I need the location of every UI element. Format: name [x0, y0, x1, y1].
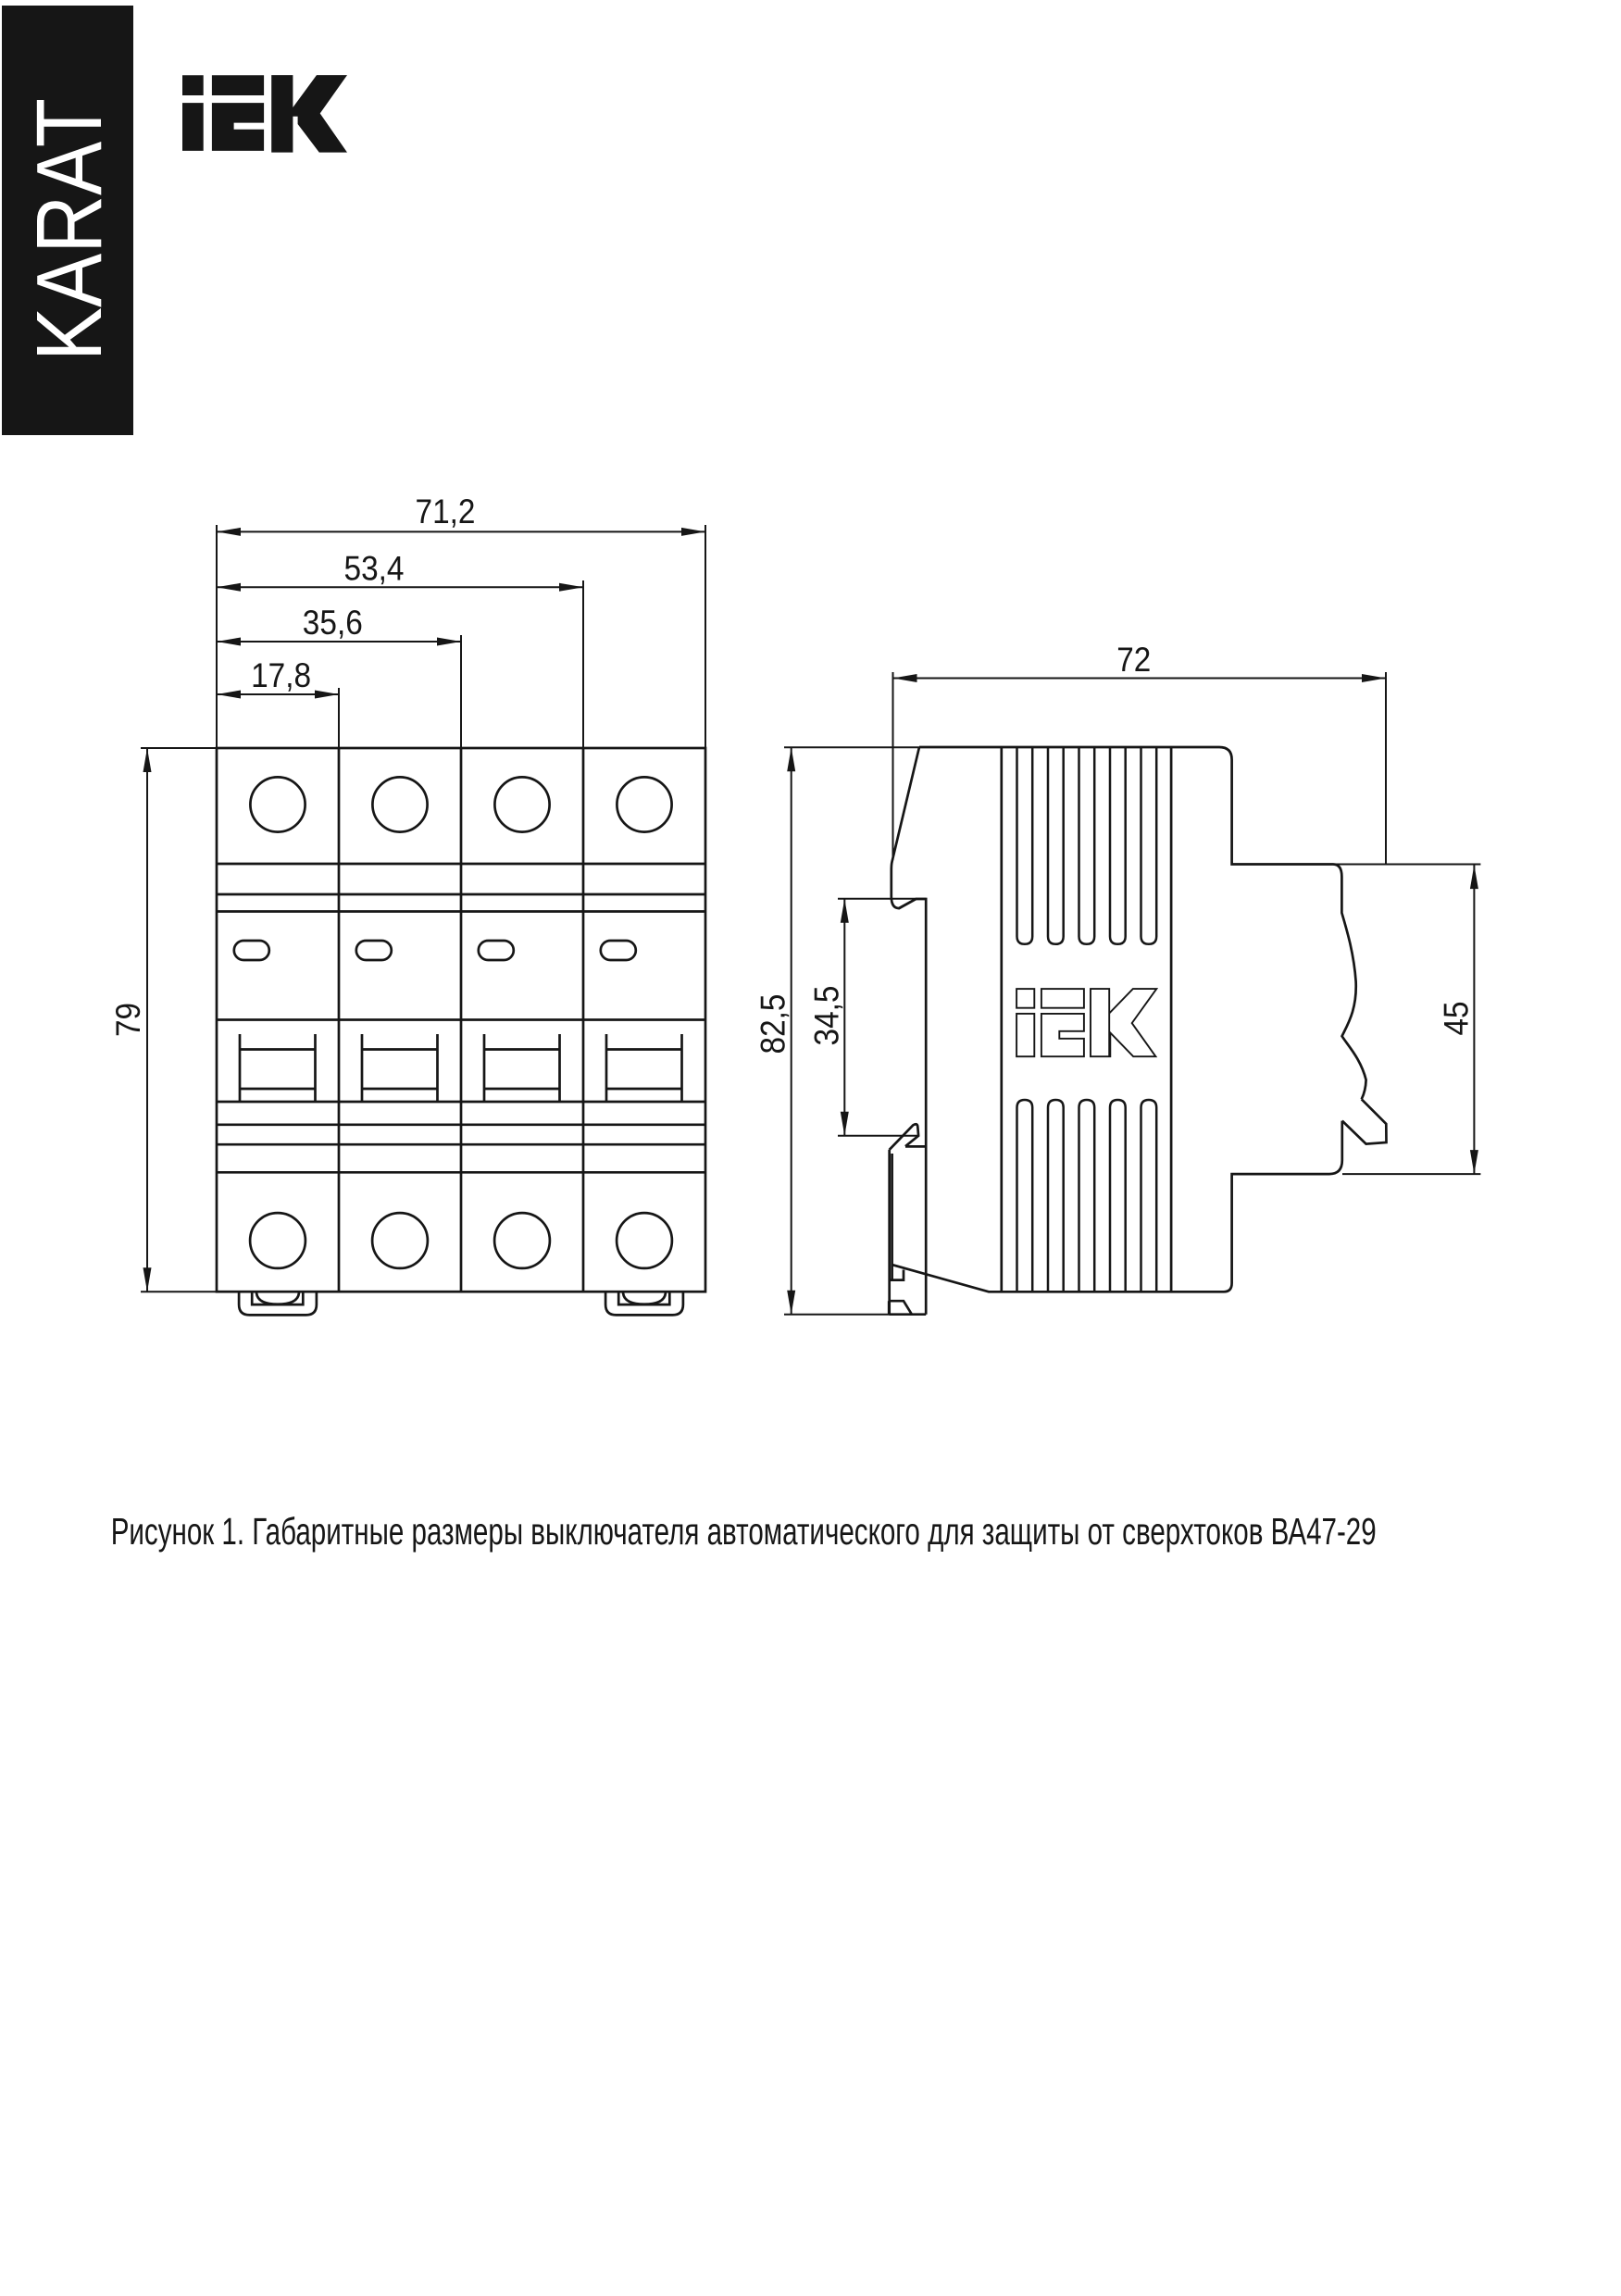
- svg-text:35,6: 35,6: [303, 604, 363, 642]
- svg-text:72: 72: [1116, 641, 1151, 679]
- svg-text:KARAT: KARAT: [18, 98, 121, 361]
- svg-text:82,5: 82,5: [754, 994, 792, 1054]
- svg-text:34,5: 34,5: [807, 986, 845, 1046]
- svg-text:71,2: 71,2: [416, 493, 476, 530]
- svg-text:79: 79: [109, 1003, 147, 1037]
- svg-text:17,8: 17,8: [251, 656, 311, 694]
- svg-text:Рисунок 1. Габаритные размеры: Рисунок 1. Габаритные размеры выключател…: [111, 1510, 1377, 1553]
- svg-text:53,4: 53,4: [344, 549, 405, 587]
- svg-text:45: 45: [1437, 1002, 1475, 1036]
